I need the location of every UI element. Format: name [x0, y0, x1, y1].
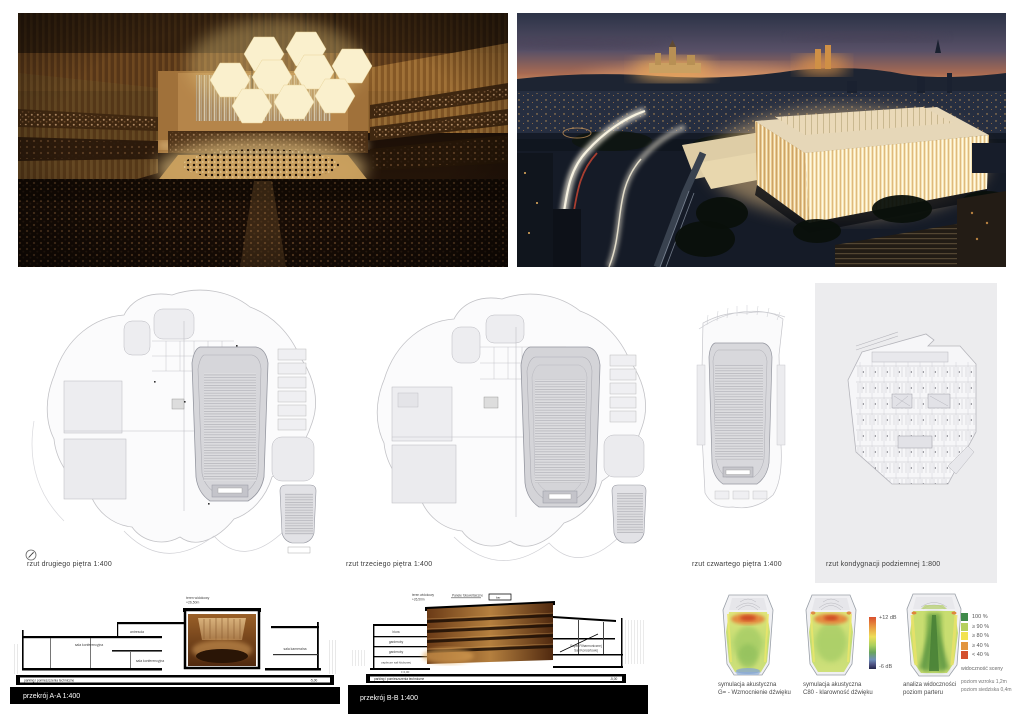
db-scale-max-label: +12 dB [879, 615, 897, 621]
acoustic-simulation-c80-diagram [803, 592, 859, 680]
caption-acoustic-g-line2: G= - Wzmocnienie dźwięku [718, 690, 791, 698]
section-b-top-note: teren widokowy [412, 593, 434, 597]
caption-acoustic-c80-line1: symulacja akustyczna [803, 682, 873, 690]
section-b-foyer-line2: Sali Koncertowej [574, 649, 598, 653]
floor-plan-fourth-floor [685, 295, 795, 525]
interior-render-graphic [18, 13, 508, 267]
visibility-legend: 100 % ≥ 90 % ≥ 80 % ≥ 40 % < 40 % widocz… [961, 613, 1012, 694]
legend-label-lt40: < 40 % [972, 652, 989, 658]
section-b-level0: ± 0,00 [401, 670, 410, 674]
legend-label-90: ≥ 90 % [972, 624, 989, 630]
render-city-aerial-night [517, 13, 1006, 267]
section-a-room3-label: sala kameralna [284, 647, 307, 651]
section-b-room2-label: garderoby [389, 640, 404, 644]
caption-visibility-line2: poziom parteru [903, 690, 956, 698]
section-a-room1-label: sala konferencyjna [75, 643, 103, 647]
legend-label-80: ≥ 80 % [972, 633, 989, 639]
legend-label-40: ≥ 40 % [972, 643, 989, 649]
caption-acoustic-c80-line2: C80 - klarowność dźwięku [803, 690, 873, 698]
legend-row: ≥ 40 % [961, 642, 1012, 650]
section-a-title: przekrój A-A 1:400 [23, 693, 80, 700]
floor-plan-second-floor [4, 281, 334, 576]
legend-row: 100 % [961, 613, 1012, 621]
section-a-a-drawing: antresola sala konferencyjna sala konfer… [10, 592, 340, 704]
caption-acoustic-g: symulacja akustyczna G= - Wzmocnienie dź… [718, 682, 791, 697]
caption-visibility-line1: analiza widoczności [903, 682, 956, 690]
section-b-level-low: -5,00 [610, 677, 617, 681]
section-b-b-drawing: teren widokowy +26,50m Panele fotowoltai… [348, 590, 648, 714]
visibility-analysis-diagram [903, 591, 965, 681]
plan-label-second-floor: rzut drugiego piętra 1:400 [27, 561, 112, 568]
aerial-render-graphic [517, 13, 1006, 267]
section-a-mezzanine-label: antresola [130, 630, 144, 634]
section-b-top-level: +26,50m [412, 598, 425, 602]
section-b-foyer-line1: Foyer Filharmonicznej [570, 644, 602, 648]
section-a-parking-label: parking i pomieszczenia techniczne [24, 678, 74, 682]
section-b-title: przekrój B-B 1:400 [360, 695, 418, 702]
section-b-room3-label: garderoby [389, 650, 404, 654]
plan-label-fourth-floor: rzut czwartego piętra 1:400 [692, 561, 782, 568]
legend-row: < 40 % [961, 651, 1012, 659]
plan-label-underground: rzut kondygnacji podziemnej 1:800 [826, 561, 940, 568]
legend-swatch-80 [961, 632, 968, 640]
legend-caption: widoczność sceny [961, 666, 1012, 672]
legend-swatch-90 [961, 623, 968, 631]
caption-visibility: analiza widoczności poziom parteru [903, 682, 956, 697]
floor-plan-underground [828, 316, 988, 516]
section-a-top-note: teren widokowy [186, 596, 210, 600]
section-b-bar-label: bar [496, 595, 500, 599]
section-b-room4-label: zaplecze sali klubowej [381, 661, 411, 665]
section-b-pv-label: Panele fotowoltaiczne [452, 594, 483, 598]
caption-acoustic-g-line1: symulacja akustyczna [718, 682, 791, 690]
legend-row: ≥ 90 % [961, 623, 1012, 631]
render-concert-hall-interior [18, 13, 508, 267]
acoustic-simulation-g-diagram [720, 592, 776, 680]
db-scale-min-label: -6 dB [879, 664, 892, 670]
plan-label-third-floor: rzut trzeciego piętra 1:400 [346, 561, 432, 568]
legend-note-eye-level: poziom wzroku 1,2m [961, 679, 1012, 686]
floor-plan-third-floor [338, 281, 668, 581]
section-b-room1-label: biura [392, 630, 399, 634]
caption-acoustic-c80: symulacja akustyczna C80 - klarowność dź… [803, 682, 873, 697]
legend-row: ≥ 80 % [961, 632, 1012, 640]
section-a-level-low: -5,00 [310, 678, 317, 682]
legend-swatch-40 [961, 642, 968, 650]
section-a-top-level: +26,50m [186, 601, 199, 605]
legend-note-seat-level: poziom siedziska 0,4m [961, 687, 1012, 694]
section-b-parking-label: parking i pomieszczenia techniczne [374, 677, 424, 681]
legend-label-100: 100 % [972, 614, 988, 620]
legend-swatch-lt40 [961, 651, 968, 659]
legend-swatch-100 [961, 613, 968, 621]
db-color-scale [869, 617, 876, 669]
section-a-room2-label: sala konferencyjna [136, 659, 164, 663]
north-arrow-icon [25, 549, 37, 561]
presentation-board: rzut drugiego piętra 1:400 rzut trzecieg… [0, 0, 1024, 717]
